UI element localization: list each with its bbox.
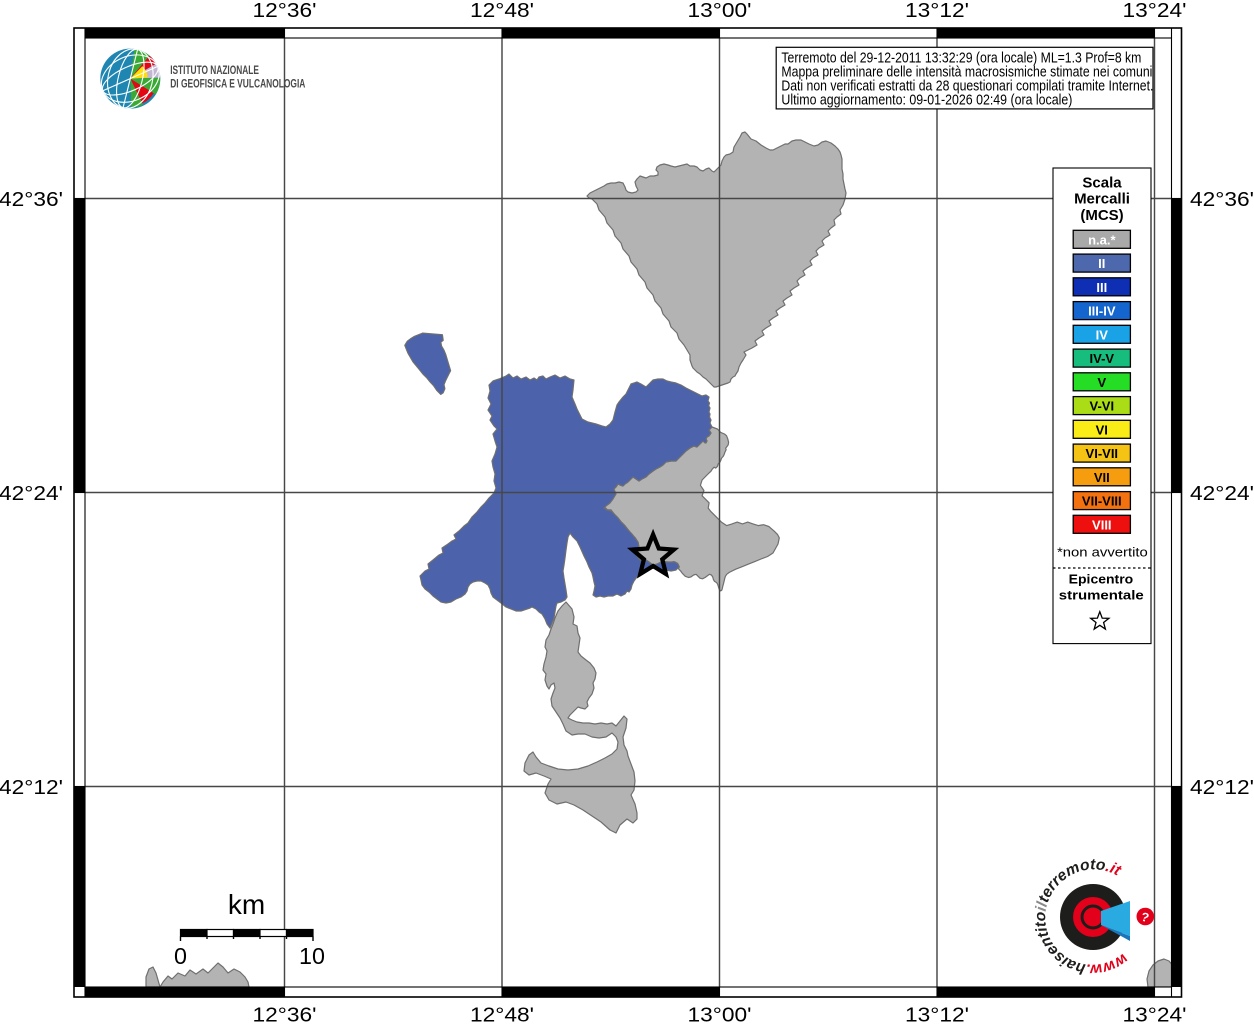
svg-text:42°12': 42°12' xyxy=(1190,776,1254,799)
svg-text:Ultimo aggiornamento: 09-01-20: Ultimo aggiornamento: 09-01-2026 02:49 (… xyxy=(781,92,1072,109)
svg-text:IV-V: IV-V xyxy=(1090,351,1115,366)
svg-text:Epicentro: Epicentro xyxy=(1069,572,1134,586)
svg-text:12°48': 12°48' xyxy=(470,1004,534,1025)
svg-text:Mercalli: Mercalli xyxy=(1074,191,1130,208)
svg-text:VII-VIII: VII-VIII xyxy=(1082,494,1122,509)
svg-text:DI GEOFISICA E VULCANOLOGIA: DI GEOFISICA E VULCANOLOGIA xyxy=(170,77,305,91)
svg-text:strumentale: strumentale xyxy=(1059,588,1144,602)
svg-text:IV: IV xyxy=(1096,327,1109,342)
svg-text:10: 10 xyxy=(299,943,325,969)
svg-text:0: 0 xyxy=(174,943,187,969)
svg-text:42°24': 42°24' xyxy=(0,482,63,505)
svg-text:42°36': 42°36' xyxy=(0,188,63,211)
svg-text:12°36': 12°36' xyxy=(253,0,317,22)
svg-text:VII: VII xyxy=(1094,470,1110,485)
svg-text:42°12': 42°12' xyxy=(0,776,63,799)
svg-text:ISTITUTO NAZIONALE: ISTITUTO NAZIONALE xyxy=(170,63,259,77)
svg-text:12°48': 12°48' xyxy=(470,0,534,22)
svg-text:(MCS): (MCS) xyxy=(1080,207,1123,224)
svg-text:n.a.*: n.a.* xyxy=(1088,232,1116,247)
svg-text:VI: VI xyxy=(1096,422,1108,437)
svg-text:VIII: VIII xyxy=(1092,517,1112,532)
svg-text:*non avvertito: *non avvertito xyxy=(1057,544,1148,559)
svg-text:13°24': 13°24' xyxy=(1123,0,1187,22)
svg-text:12°36': 12°36' xyxy=(253,1004,317,1025)
svg-text:13°12': 13°12' xyxy=(905,1004,969,1025)
svg-text:III-IV: III-IV xyxy=(1088,304,1116,319)
svg-text:42°36': 42°36' xyxy=(1190,188,1254,211)
svg-text:13°24': 13°24' xyxy=(1123,1004,1187,1025)
svg-text:42°24': 42°24' xyxy=(1190,482,1254,505)
svg-text:km: km xyxy=(228,889,265,920)
svg-text:VI-VII: VI-VII xyxy=(1086,446,1119,461)
svg-text:V: V xyxy=(1097,375,1106,390)
svg-text:13°00': 13°00' xyxy=(688,1004,752,1025)
svg-text:III: III xyxy=(1096,280,1107,295)
svg-text:V-VI: V-VI xyxy=(1090,399,1115,414)
svg-text:II: II xyxy=(1098,256,1105,271)
svg-text:13°00': 13°00' xyxy=(688,0,752,22)
svg-text:Scala: Scala xyxy=(1082,175,1122,192)
svg-text:13°12': 13°12' xyxy=(905,0,969,22)
